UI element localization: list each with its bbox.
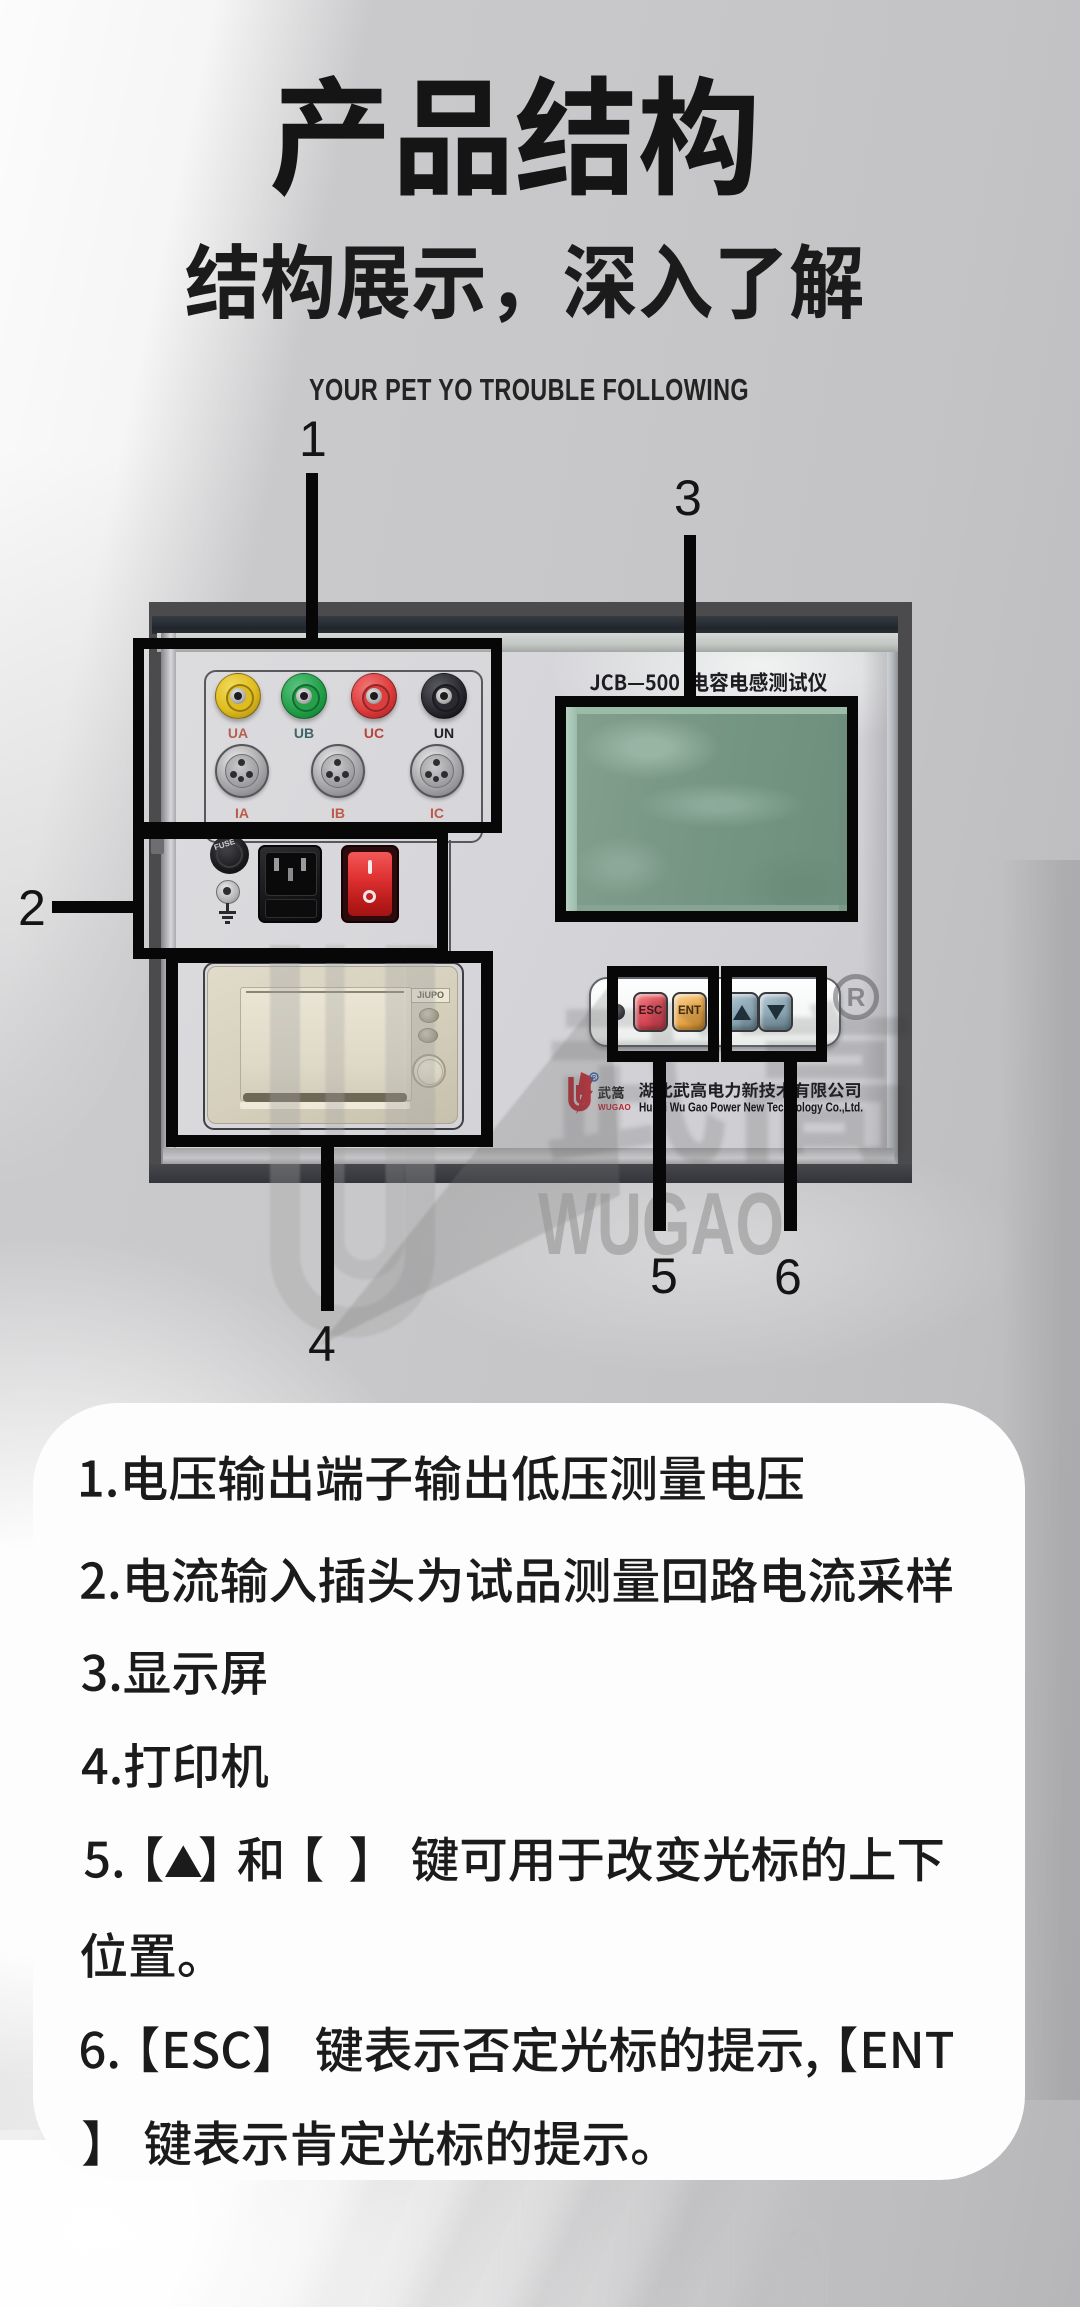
svg-text:YOUR PET YO TROUBLE FOLLOWING: YOUR PET YO TROUBLE FOLLOWING xyxy=(309,374,749,407)
